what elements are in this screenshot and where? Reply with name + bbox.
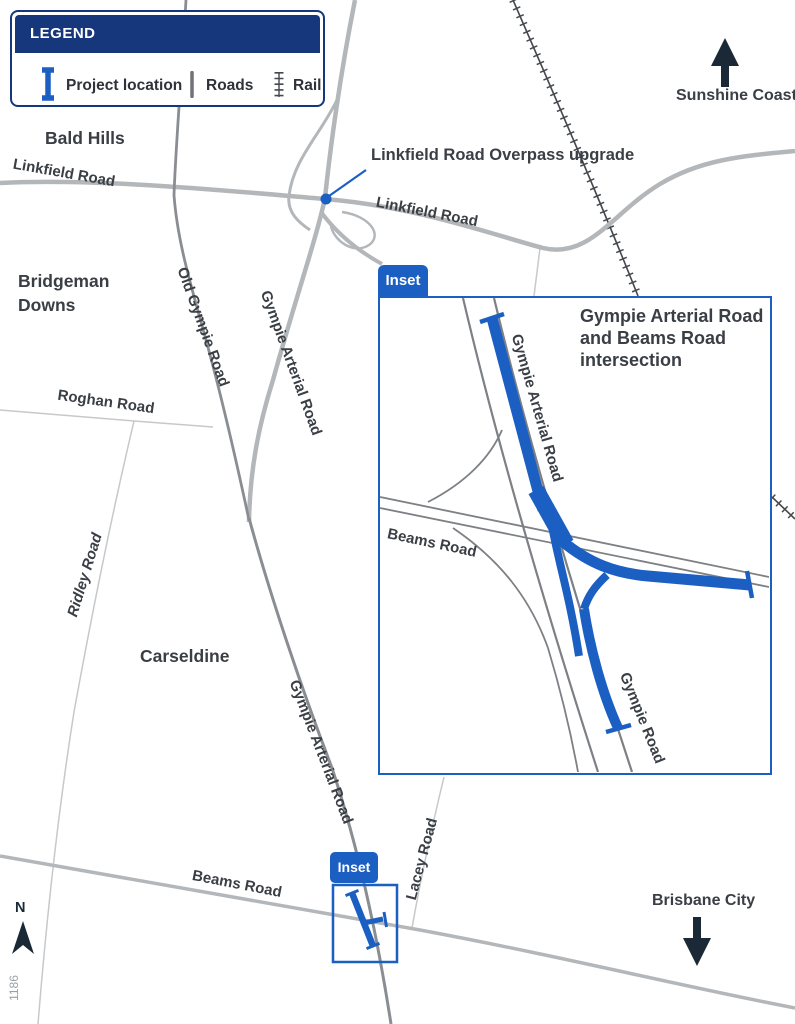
roghan-road-path: [0, 410, 213, 427]
inset-locator-tab: Inset: [330, 852, 378, 883]
callout-overpass-label: Linkfield Road Overpass upgrade: [371, 146, 634, 165]
north-letter: N: [15, 900, 25, 916]
legend-project-location-label: Project location: [66, 70, 182, 102]
overpass-dot-icon: [321, 194, 332, 205]
up-arrow-icon: [705, 36, 745, 88]
roads-icon: [189, 71, 195, 98]
legend-rail-label: Rail: [293, 70, 321, 102]
project-location-icon: [39, 67, 57, 101]
inset-panel: Gympie Arterial Road and Beams Road inte…: [378, 296, 772, 775]
place-label-bridgeman-downs: Bridgeman Downs: [18, 270, 138, 317]
direction-label-brisbane-city: Brisbane City: [652, 892, 755, 910]
direction-label-sunshine-coast: Sunshine Coast: [676, 87, 795, 105]
down-arrow-icon: [677, 916, 717, 968]
inset-title: Gympie Arterial Road and Beams Road inte…: [580, 306, 774, 372]
linkfield-inset-connector-path: [534, 248, 540, 296]
map-number: 1186: [7, 975, 21, 1001]
rail-icon: [273, 71, 285, 98]
ridley-road-path: [38, 421, 134, 1024]
arterial-inset-branch-path: [321, 212, 382, 264]
place-label-carseldine: Carseldine: [140, 646, 229, 667]
rail-line-path-southeast: [772, 497, 795, 519]
legend-roads-label: Roads: [206, 70, 253, 102]
place-label-bald-hills: Bald Hills: [45, 128, 125, 149]
legend-panel: LEGEND Project location Roads Rail: [10, 10, 325, 107]
legend-title: LEGEND: [15, 15, 320, 53]
inset-ramp-north-path: [428, 430, 502, 502]
north-arrow-icon: [8, 918, 40, 958]
callout-leader-line: [329, 170, 366, 196]
map-canvas: LEGEND Project location Roads Rail Bald …: [0, 0, 795, 1024]
inset-tab: Inset: [378, 265, 428, 299]
